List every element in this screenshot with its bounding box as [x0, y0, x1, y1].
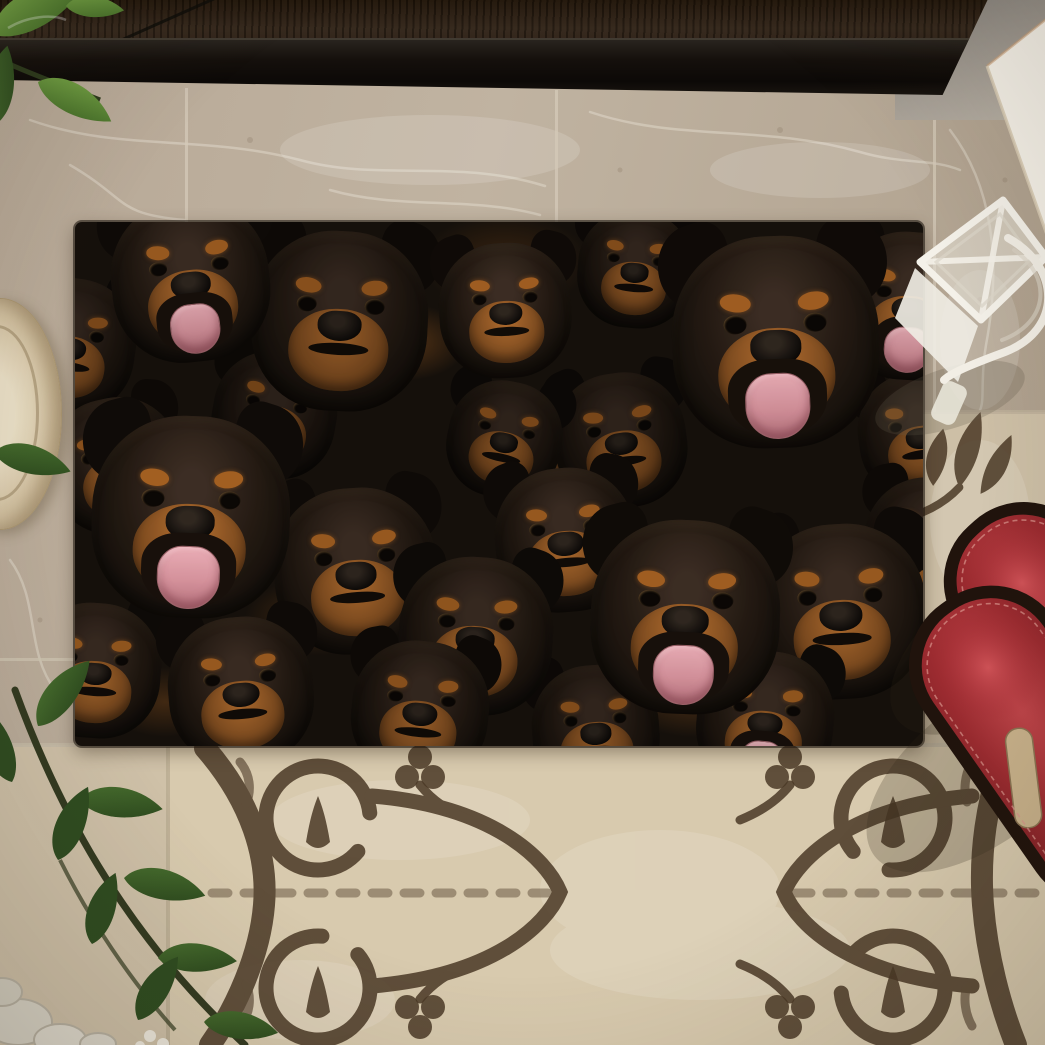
dog-eye: [796, 589, 816, 606]
plate-ring: [0, 325, 39, 501]
dog-eye: [141, 488, 164, 507]
grout-line: [933, 100, 936, 412]
rottweiler-face: [335, 622, 505, 746]
dog-brow: [146, 246, 170, 260]
rottweiler-doormat: [75, 222, 923, 746]
door-sill: [0, 38, 1045, 100]
grout-line: [555, 90, 558, 222]
dog-eye: [258, 667, 276, 682]
dog-eye: [802, 312, 826, 332]
door-threshold: [0, 0, 1045, 100]
white-flowers: [135, 1030, 169, 1045]
dog-eye: [723, 314, 747, 334]
dog-eye: [313, 550, 332, 566]
dog-eye: [638, 589, 660, 607]
grout-line: [0, 658, 75, 661]
dog-brow: [438, 680, 459, 692]
dog-tongue: [652, 643, 714, 705]
scrollwork-pattern: [180, 745, 1040, 1045]
rottweiler-face: [426, 228, 584, 386]
dog-tongue: [743, 371, 811, 439]
rottweiler-face: [75, 396, 306, 629]
rottweiler-face: [91, 222, 289, 376]
grout-line: [185, 88, 188, 222]
scene: [0, 0, 1045, 1045]
dog-brow: [583, 412, 603, 423]
white-pebbles: [0, 978, 116, 1045]
dog-eye: [862, 585, 882, 602]
cream-plate: [0, 298, 62, 530]
dog-eye: [711, 591, 733, 609]
rottweiler-face: [653, 222, 896, 459]
dog-eye: [217, 490, 240, 509]
sandal-back: [913, 471, 1045, 828]
dog-eye: [496, 616, 514, 631]
dog-eye: [202, 672, 220, 687]
dog-eye: [437, 613, 455, 628]
rottweiler-face: [574, 501, 796, 723]
